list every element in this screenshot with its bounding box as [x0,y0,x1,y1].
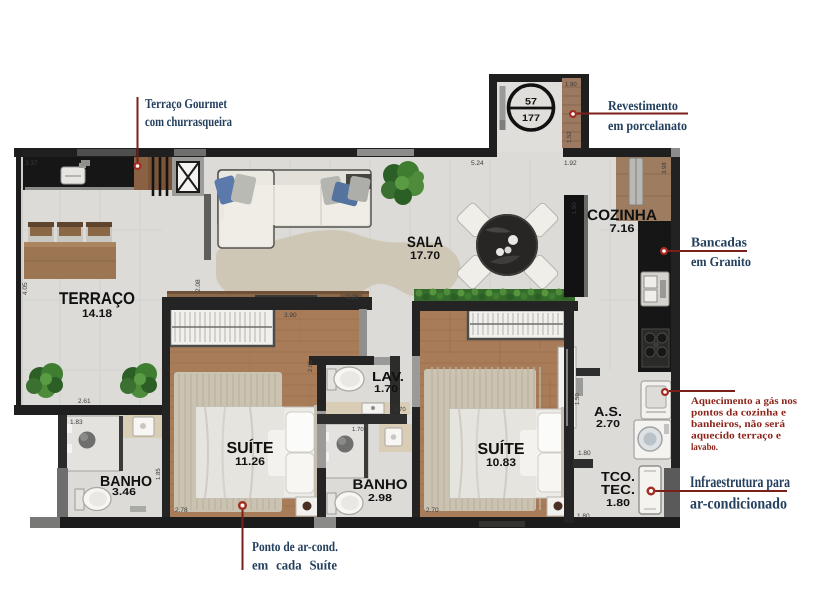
svg-text:com churrasqueira: com churrasqueira [145,114,232,129]
svg-text:1.70: 1.70 [374,384,399,395]
svg-text:em porcelanato: em porcelanato [608,118,687,133]
svg-text:2.05: 2.05 [307,360,314,372]
svg-text:Bancadas: Bancadas [691,235,747,250]
svg-text:57: 57 [525,97,537,108]
svg-text:3.37: 3.37 [25,160,38,167]
svg-text:2.70: 2.70 [596,419,621,430]
svg-text:SUÍTE: SUÍTE [227,438,274,457]
svg-text:Revestimento: Revestimento [608,98,678,113]
svg-text:2.70: 2.70 [426,507,439,514]
svg-text:1.90: 1.90 [571,202,578,214]
svg-text:banheiros, não será: banheiros, não será [691,419,785,430]
svg-text:BANHO: BANHO [353,476,408,492]
svg-text:2.08: 2.08 [195,279,202,292]
svg-text:3.98: 3.98 [661,162,668,174]
svg-text:Infraestrutura para: Infraestrutura para [690,474,790,491]
svg-text:1.80: 1.80 [577,513,590,520]
svg-text:pontos da cozinha e: pontos da cozinha e [691,408,787,419]
svg-text:1.83: 1.83 [70,419,83,426]
svg-text:ar-condicionado: ar-condicionado [690,496,787,513]
svg-text:TERRAÇO: TERRAÇO [59,289,135,308]
svg-text:2.08: 2.08 [346,294,359,301]
svg-text:A.S.: A.S. [594,404,622,419]
svg-text:em cada Suíte: em cada Suíte [252,558,337,573]
svg-text:17.70: 17.70 [410,250,440,262]
svg-text:177: 177 [522,113,540,124]
svg-text:7.16: 7.16 [610,223,635,235]
svg-text:SALA: SALA [407,234,443,251]
svg-text:1.70: 1.70 [394,406,406,413]
svg-text:2.61: 2.61 [78,398,91,405]
svg-text:2.78: 2.78 [175,507,188,514]
svg-text:1.52: 1.52 [566,131,573,143]
svg-text:2.98: 2.98 [368,493,393,504]
svg-text:1.50: 1.50 [574,393,581,405]
svg-text:em Granito: em Granito [691,254,751,269]
svg-text:SUÍTE: SUÍTE [478,439,525,458]
svg-text:1.80: 1.80 [578,450,591,457]
svg-text:1.85: 1.85 [155,468,162,480]
svg-text:1.92: 1.92 [564,160,577,167]
svg-text:Aquecimento a gás nos: Aquecimento a gás nos [691,396,797,407]
svg-text:10.83: 10.83 [486,457,516,469]
svg-text:3.90: 3.90 [284,312,297,319]
svg-text:Terraço Gourmet: Terraço Gourmet [145,96,227,111]
svg-text:4.05: 4.05 [22,282,29,295]
svg-text:TEC.: TEC. [601,482,635,497]
svg-text:14.18: 14.18 [82,308,112,320]
svg-text:Ponto de ar-cond.: Ponto de ar-cond. [252,539,338,554]
svg-text:1.90: 1.90 [565,81,577,88]
svg-text:LAV.: LAV. [372,369,404,384]
svg-text:5.24: 5.24 [471,160,484,167]
svg-text:1.80: 1.80 [606,498,631,509]
svg-text:lavabo.: lavabo. [691,442,718,453]
svg-text:aquecido terraço e: aquecido terraço e [691,431,782,442]
svg-text:11.26: 11.26 [235,456,265,468]
svg-text:3.46: 3.46 [112,487,137,498]
svg-text:COZINHA: COZINHA [587,207,657,224]
svg-text:1.70: 1.70 [352,426,364,433]
